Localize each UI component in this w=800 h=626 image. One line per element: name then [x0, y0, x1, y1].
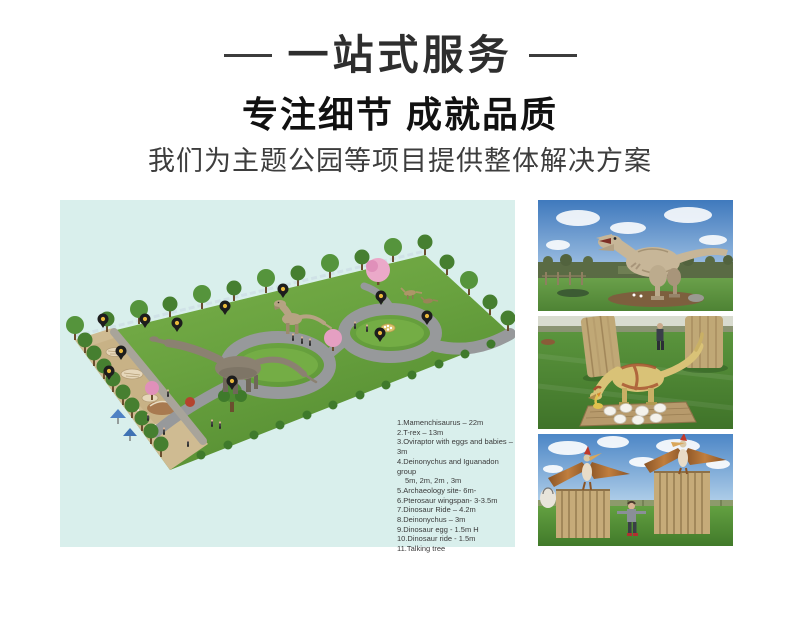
legend-item: 7.Dinosaur Ride – 4.2m	[397, 505, 515, 515]
legend-item: 5m, 2m, 2m , 3m	[397, 476, 515, 486]
park-plan-image: 1.Mamenchisaurus – 22m 2.T-rex – 13m 3.O…	[60, 200, 515, 547]
palisade-right	[654, 472, 710, 534]
palisade-left	[556, 490, 610, 538]
legend-item: 6.Pterosaur wingspan- 3-3.5m	[397, 496, 515, 506]
grass-island	[356, 319, 424, 347]
rock	[688, 294, 704, 302]
legend-item: 1.Mamenchisaurus – 22m	[397, 418, 515, 428]
pterosaur-posts-photo	[538, 434, 733, 546]
page-subheading: 我们为主题公园等项目提供整体解决方案	[0, 139, 800, 178]
small-dino	[541, 339, 555, 345]
t-rex-park-photo	[538, 200, 733, 311]
plan-legend: 1.Mamenchisaurus – 22m 2.T-rex – 13m 3.O…	[397, 418, 515, 554]
title-rule-right	[529, 54, 577, 57]
content-row: 1.Mamenchisaurus – 22m 2.T-rex – 13m 3.O…	[60, 200, 733, 547]
legend-item: 2.T-rex – 13m	[397, 428, 515, 438]
section-title-row: 一站式服务	[0, 33, 800, 77]
oviraptor-nest-photo	[538, 316, 733, 429]
legend-item: 3.Oviraptor with eggs and babies – 3m	[397, 437, 515, 456]
legend-item: 8.Deinonychus – 3m	[397, 515, 515, 525]
legend-item: 9.Dinosaur egg - 1.5m H	[397, 525, 515, 535]
photo-column	[538, 200, 733, 547]
pond	[557, 289, 589, 297]
page-heading: 专注细节 成就品质	[0, 86, 800, 138]
legend-item: 4.Deinonychus and Iguanadon group	[397, 457, 515, 476]
legend-item: 11.Talking tree	[397, 544, 515, 554]
legend-item: 5.Archaeology site- 6m-	[397, 486, 515, 496]
legend-item: 10.Dinosaur ride - 1.5m	[397, 534, 515, 544]
page-title: 一站式服务	[288, 33, 513, 77]
egg-house	[540, 488, 556, 508]
title-rule-left	[224, 54, 272, 57]
